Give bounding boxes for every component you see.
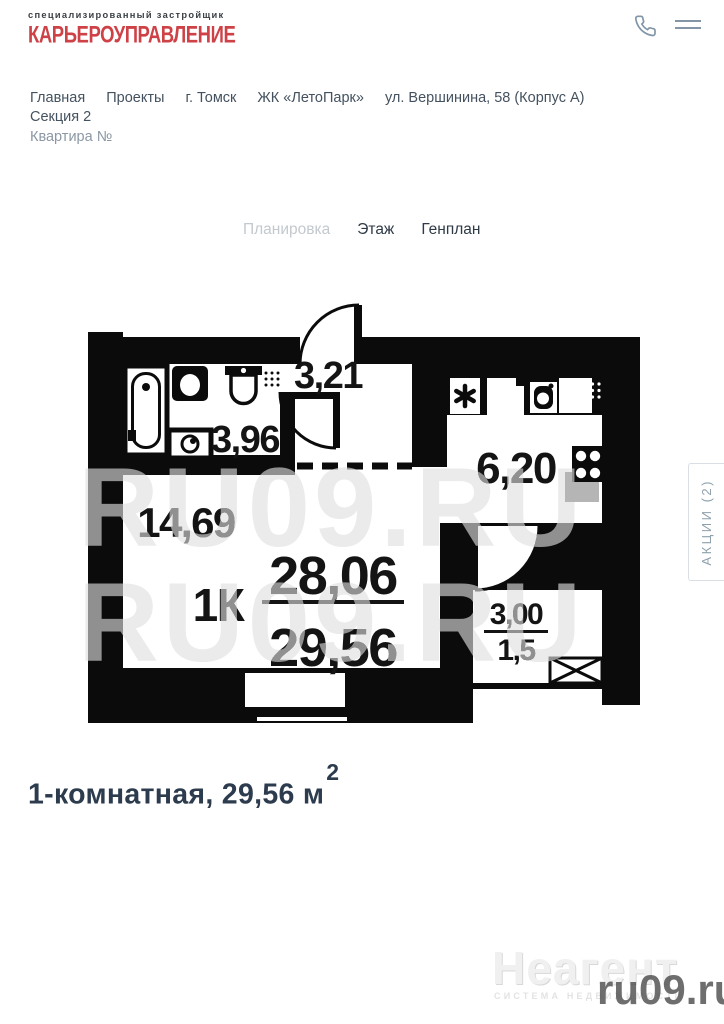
floorplan: 3,21 3,96 6,20 14,69 1К 28,06 29,56 3,00… — [85, 280, 640, 730]
bathtub — [125, 366, 167, 455]
vent-grid-icon — [265, 372, 280, 387]
flat-summary-text: 1-комнатная, 29,56 м — [28, 779, 324, 811]
area-total-label: 29,56 — [269, 618, 397, 678]
kitchen-vent-icon — [584, 382, 600, 398]
flat-summary-title: 1-комнатная, 29,56 м2 — [28, 772, 337, 812]
room-label-bathroom: 3,96 — [211, 419, 279, 461]
breadcrumb-current: Квартира № — [30, 128, 680, 147]
flat-type-label: 1К — [193, 579, 246, 631]
breadcrumb-section[interactable]: Секция 2 — [30, 108, 91, 127]
room-label-living: 14,69 — [137, 499, 235, 546]
bathroom-sink — [225, 366, 262, 404]
room-label-hall: 3,21 — [294, 355, 363, 397]
breadcrumb-projects[interactable]: Проекты — [106, 89, 164, 108]
area-main-label: 28,06 — [269, 546, 397, 606]
breadcrumb-building[interactable]: ул. Вершинина, 58 (Корпус А) — [385, 89, 585, 108]
window-sill — [257, 717, 347, 721]
balcony-reduced-label: 1,5 — [497, 634, 535, 667]
site-watermark: ru09.ru — [597, 966, 724, 1014]
developer-logo[interactable]: специализированный застройщик КАРЬЕРОУПР… — [28, 10, 275, 47]
toilet — [172, 366, 208, 401]
breadcrumb-row: Главная Проекты г. Томск ЖК «ЛетоПарк» у… — [30, 89, 680, 127]
tab-genplan[interactable]: Генплан — [421, 221, 480, 239]
breadcrumb-complex[interactable]: ЖК «ЛетоПарк» — [257, 89, 364, 108]
window — [245, 673, 345, 707]
breadcrumb-city[interactable]: г. Томск — [185, 89, 236, 108]
breadcrumb: Главная Проекты г. Томск ЖК «ЛетоПарк» у… — [30, 89, 680, 147]
phone-icon[interactable] — [634, 14, 658, 38]
promo-side-tab-label: АКЦИИ (2) — [699, 479, 714, 566]
breadcrumb-home[interactable]: Главная — [30, 89, 85, 108]
agency-watermark-subtitle: СИСТЕМА НЕДВИЖИМОСТИ — [494, 991, 684, 1001]
area-fraction-line — [262, 600, 404, 604]
logo-title: КАРЬЕРОУПРАВЛЕНИЕ — [28, 21, 235, 49]
room-label-kitchen: 6,20 — [476, 444, 556, 493]
balcony-fraction-line — [484, 630, 548, 633]
balcony-area-label: 3,00 — [490, 598, 543, 631]
washing-machine — [169, 430, 211, 458]
balcony-hatch — [550, 658, 602, 683]
tab-planirovka[interactable]: Планировка — [243, 221, 330, 239]
stove — [565, 446, 602, 502]
view-tabs: Планировка Этаж Генплан — [243, 221, 480, 239]
hamburger-menu-icon[interactable] — [675, 20, 701, 32]
flat-summary-sup: 2 — [326, 759, 339, 785]
promo-side-tab[interactable]: АКЦИИ (2) — [688, 463, 724, 581]
logo-subtitle: специализированный застройщик — [28, 10, 275, 20]
tab-etazh[interactable]: Этаж — [357, 221, 394, 239]
agency-watermark: Неагент — [492, 941, 678, 995]
